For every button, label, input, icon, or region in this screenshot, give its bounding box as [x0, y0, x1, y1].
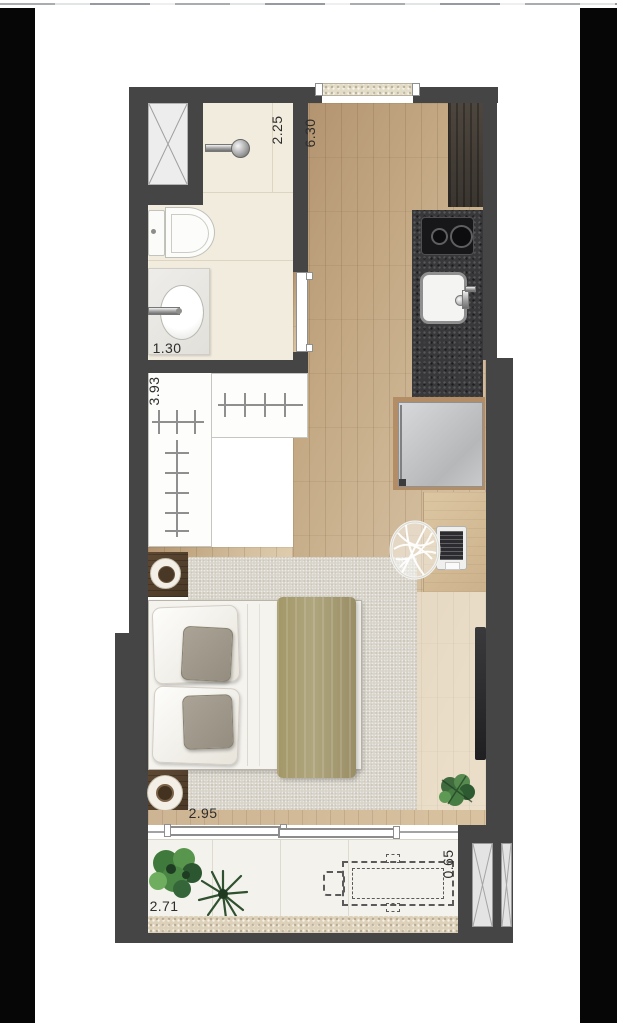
top-hairline	[0, 3, 617, 5]
balcony-palm-plant	[196, 868, 250, 920]
sliding-door-panel-right	[278, 828, 399, 838]
clothes-rail	[176, 440, 178, 537]
entry-sill-cap-right	[412, 83, 420, 96]
entry-door-sill	[322, 83, 413, 96]
burner-large	[450, 225, 473, 248]
louver-shaft-2	[501, 843, 512, 927]
door-handle	[164, 824, 171, 837]
hanger-tick	[165, 530, 189, 532]
shaft-x-icon	[148, 103, 188, 185]
louver-x-icon	[472, 843, 493, 927]
wall-left-lower	[115, 633, 148, 943]
toilet-flush-button	[151, 229, 156, 234]
dashed-chair	[323, 871, 345, 896]
dimension-balcony-depth: 0.65	[440, 844, 456, 884]
balcony-joint	[280, 840, 281, 917]
wall-tv	[475, 627, 486, 760]
hanger-tick	[165, 472, 189, 474]
tile-joint	[148, 260, 293, 261]
monstera-plant-icon	[436, 770, 478, 810]
dashed-tab-bottom	[386, 903, 400, 912]
clothes-rail	[218, 404, 303, 406]
dimension-bedroom-width: 2.95	[185, 805, 221, 821]
laptop-trackpad	[445, 562, 460, 570]
bathroom-door-leaf	[296, 272, 308, 352]
round-side-table-bottom	[147, 775, 183, 811]
tile-joint	[203, 192, 293, 193]
hanger-tick	[165, 512, 189, 514]
sink-faucet-lever	[465, 286, 476, 292]
entry-sill-cap-left	[315, 83, 323, 96]
bed-fold-line	[247, 604, 248, 766]
sliding-door-panel-left	[166, 826, 286, 836]
hanger-tick	[165, 492, 189, 494]
louver-x-icon	[501, 843, 512, 927]
dimension-shower-width: 2.25	[269, 110, 285, 150]
monstera-plant	[436, 770, 478, 810]
wall-bottom	[115, 933, 513, 943]
dimension-bathroom-length: 1.30	[149, 340, 185, 356]
basin-drain	[176, 308, 182, 314]
bed-fold-line	[259, 604, 260, 766]
dimension-closet-length: 3.93	[146, 371, 162, 411]
dimension-balcony-length: 2.71	[146, 898, 182, 914]
side-table-center	[158, 566, 175, 583]
louver-shaft-1	[472, 843, 493, 927]
hanger-tick	[264, 393, 266, 417]
wall-right-kitchen	[483, 87, 497, 360]
hanger-tick	[165, 452, 189, 454]
hanger-tick	[244, 393, 246, 417]
wall-shaft-bottom	[148, 185, 203, 205]
hanger-tick	[194, 410, 196, 434]
side-table-center	[156, 784, 174, 802]
hanger-tick	[224, 393, 226, 417]
dashed-tab-top	[386, 854, 400, 863]
fridge	[398, 402, 483, 487]
wire-chair	[388, 519, 442, 581]
dashed-table-inner	[352, 868, 444, 899]
wire-chair-icon	[388, 519, 442, 581]
burner-small	[431, 228, 448, 245]
hanger-tick	[176, 410, 178, 434]
fridge-handle	[400, 405, 402, 484]
olive-blanket	[277, 597, 356, 778]
gray-pillow	[182, 694, 234, 750]
wardrobe-cabinet	[448, 103, 483, 207]
round-side-table-top	[150, 558, 181, 589]
door-hinge-bottom	[306, 344, 313, 352]
dimension-living-length: 6.30	[302, 113, 318, 153]
gravel-strip	[148, 916, 458, 933]
hanger-tick	[284, 393, 286, 417]
door-handle	[393, 826, 400, 839]
fridge-hinge	[399, 479, 406, 486]
palm-plant-icon	[196, 868, 250, 920]
shower-mixer-knob	[231, 139, 250, 158]
floor-plan-screenshot: 2.25 6.30 1.30 3.93 2.95 2.71 0.65	[0, 0, 617, 1023]
left-black-bar	[0, 8, 35, 1023]
service-shaft	[148, 103, 188, 185]
door-hinge-top	[306, 272, 313, 280]
sink-faucet-spout	[462, 290, 469, 309]
gray-pillow	[181, 626, 234, 683]
toilet-seat-line	[171, 214, 209, 253]
cooktop	[421, 217, 474, 255]
laptop-keyboard	[440, 531, 463, 560]
right-black-bar	[580, 8, 617, 1023]
hanger-tick	[158, 410, 160, 434]
